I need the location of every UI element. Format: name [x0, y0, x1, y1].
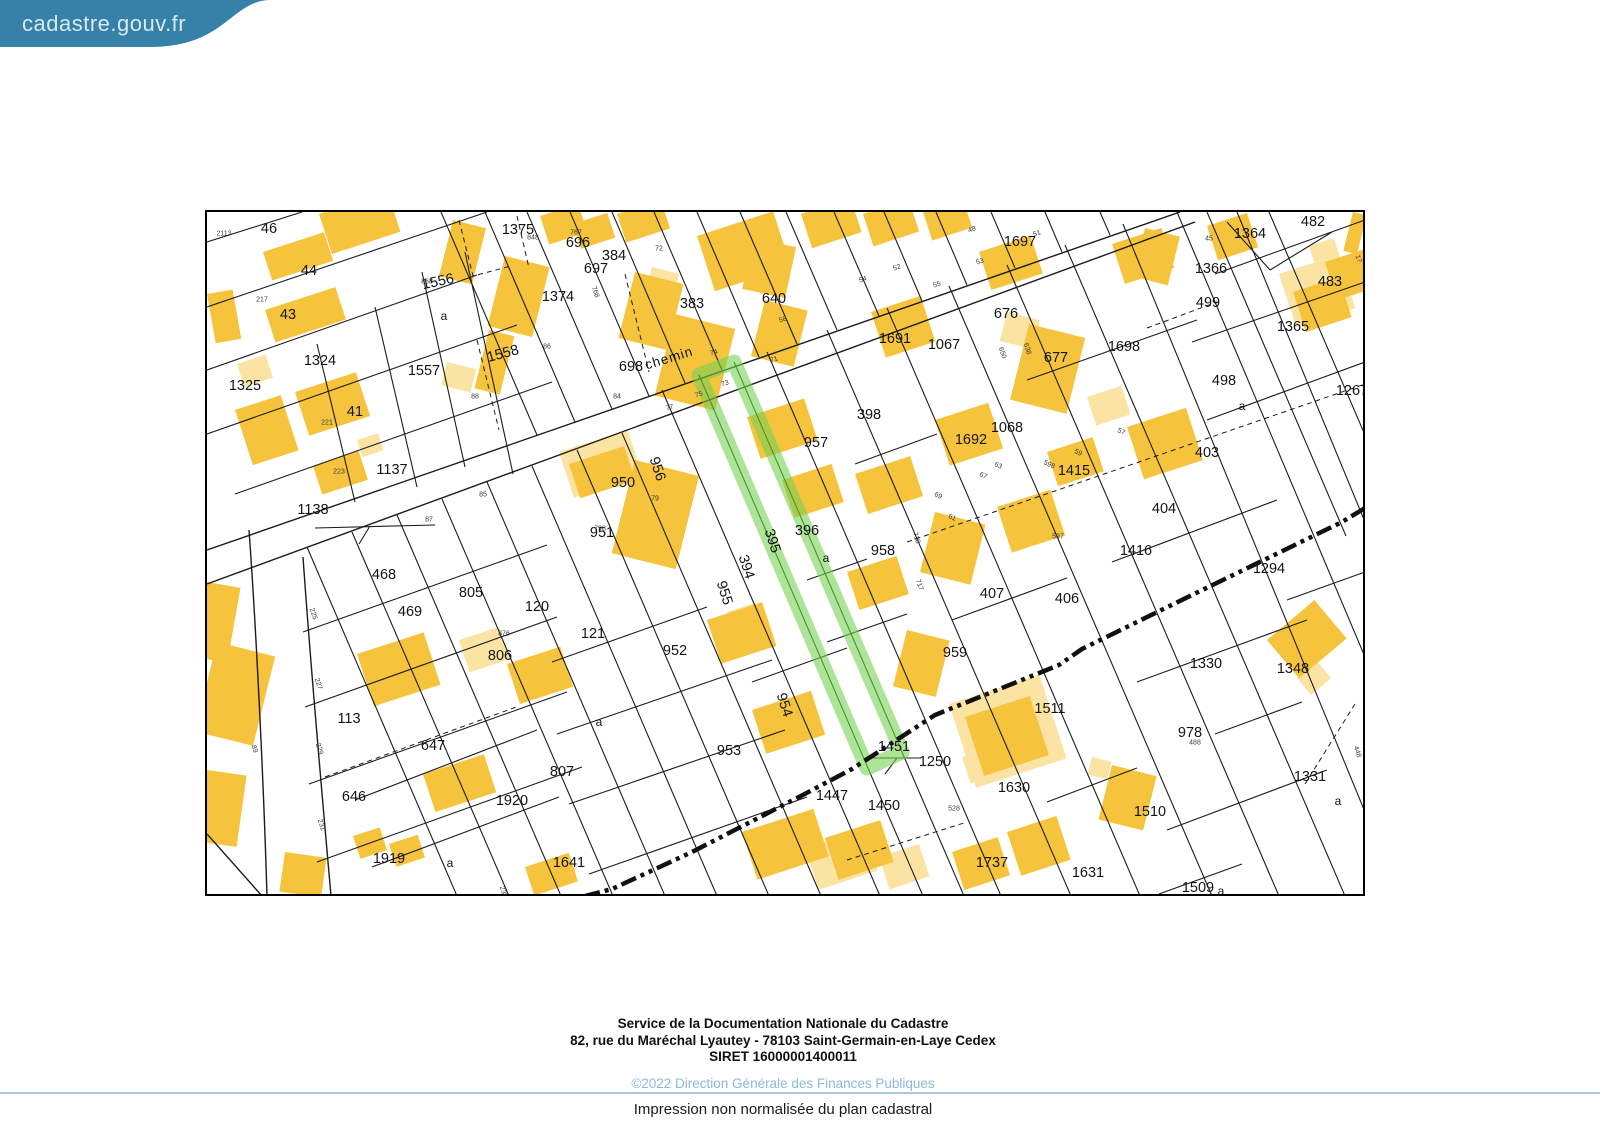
map-canvas — [207, 212, 1365, 896]
footer-street-line: 82, rue du Maréchal Lyautey - 78103 Sain… — [0, 1033, 1566, 1050]
footer-impression: Impression non normalisée du plan cadast… — [0, 1101, 1566, 1118]
print-page: cadastre.gouv.fr — [0, 0, 1600, 1131]
buildings-layer — [207, 212, 1365, 896]
cadastral-map-frame: 4644431324132541155615571558113711381375… — [205, 210, 1365, 896]
cadastral-map: 4644431324132541155615571558113711381375… — [207, 212, 1365, 896]
footer-address: Service de la Documentation Nationale du… — [0, 1016, 1566, 1066]
footer-service-line: Service de la Documentation Nationale du… — [0, 1016, 1566, 1033]
cadastre-logo: cadastre.gouv.fr — [22, 11, 186, 37]
header-banner: cadastre.gouv.fr — [0, 0, 270, 52]
roads-layer — [207, 212, 1195, 896]
footer-divider — [0, 1092, 1600, 1094]
footer-siret-line: SIRET 16000001400011 — [0, 1049, 1566, 1066]
footer-copyright: ©2022 Direction Générale des Finances Pu… — [0, 1076, 1566, 1091]
